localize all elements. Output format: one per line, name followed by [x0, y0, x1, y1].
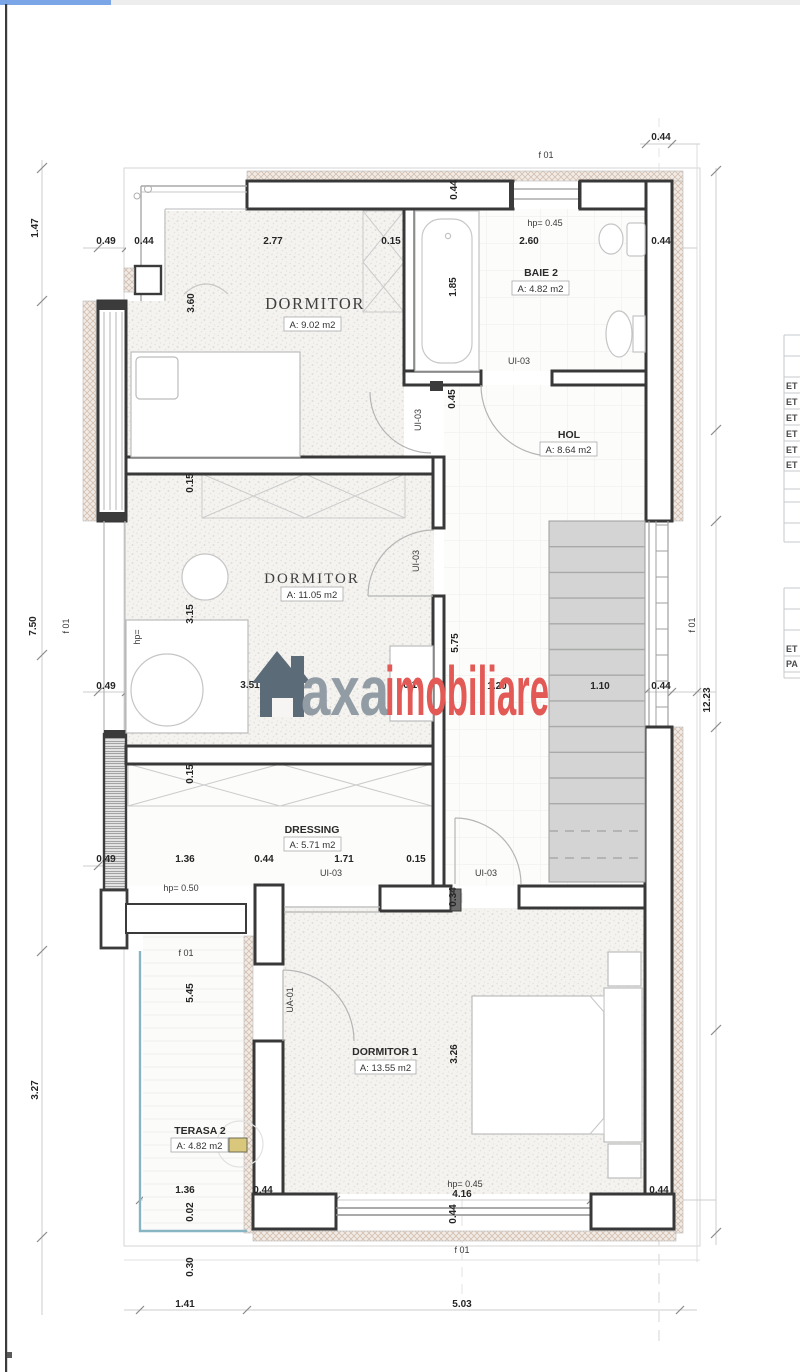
- svg-text:axa: axa: [301, 652, 390, 730]
- svg-text:UI-03: UI-03: [320, 868, 342, 878]
- svg-text:TERASA 2: TERASA 2: [174, 1125, 226, 1137]
- svg-text:1.10: 1.10: [590, 681, 610, 692]
- svg-text:1.47: 1.47: [30, 218, 41, 238]
- svg-text:0.49: 0.49: [96, 236, 116, 247]
- svg-text:A: 11.05 m2: A: 11.05 m2: [287, 590, 338, 601]
- svg-text:hp= 0.45: hp= 0.45: [447, 1179, 482, 1189]
- svg-text:hp= 0.50: hp= 0.50: [163, 883, 198, 893]
- svg-text:3.26: 3.26: [449, 1044, 460, 1064]
- svg-text:0.15: 0.15: [406, 854, 426, 865]
- svg-text:3.15: 3.15: [185, 604, 196, 624]
- svg-text:ET: ET: [786, 397, 798, 407]
- svg-text:BAIE 2: BAIE 2: [524, 267, 558, 279]
- svg-text:f 01: f 01: [178, 948, 193, 958]
- svg-text:0.44: 0.44: [651, 132, 671, 143]
- svg-text:imobiliare: imobiliare: [385, 652, 549, 730]
- svg-text:0.45: 0.45: [447, 389, 458, 409]
- svg-text:0.44: 0.44: [448, 1204, 459, 1224]
- svg-text:5.45: 5.45: [185, 983, 196, 1003]
- svg-text:5.75: 5.75: [450, 633, 461, 653]
- svg-text:ET: ET: [786, 413, 798, 423]
- svg-text:hp=: hp=: [132, 629, 142, 644]
- svg-text:DORMITOR 1: DORMITOR 1: [352, 1046, 418, 1058]
- svg-text:0.02: 0.02: [185, 1202, 196, 1222]
- svg-text:0.44: 0.44: [449, 180, 460, 200]
- svg-text:0.44: 0.44: [649, 1185, 669, 1196]
- svg-text:3.27: 3.27: [30, 1080, 41, 1100]
- svg-text:0.44: 0.44: [253, 1185, 273, 1196]
- svg-text:12.23: 12.23: [702, 687, 713, 712]
- svg-text:UI-03: UI-03: [475, 868, 497, 878]
- svg-text:f 01: f 01: [454, 1245, 469, 1255]
- svg-text:2.77: 2.77: [263, 236, 283, 247]
- svg-text:PA: PA: [786, 659, 798, 669]
- svg-text:2.60: 2.60: [519, 236, 539, 247]
- svg-text:1.36: 1.36: [175, 1185, 195, 1196]
- svg-text:0.15: 0.15: [185, 473, 196, 493]
- svg-text:0.44: 0.44: [254, 854, 274, 865]
- svg-text:3.60: 3.60: [186, 293, 197, 313]
- svg-text:UI-03: UI-03: [411, 550, 421, 572]
- svg-text:HOL: HOL: [558, 429, 581, 441]
- svg-text:f 01: f 01: [687, 617, 697, 632]
- svg-text:0.15: 0.15: [185, 764, 196, 784]
- svg-text:1.71: 1.71: [334, 854, 354, 865]
- svg-text:4.16: 4.16: [452, 1189, 472, 1200]
- svg-text:0.49: 0.49: [96, 854, 116, 865]
- svg-text:DORMITOR: DORMITOR: [264, 571, 360, 587]
- svg-text:A: 4.82 m2: A: 4.82 m2: [518, 284, 564, 295]
- svg-text:A: 9.02 m2: A: 9.02 m2: [290, 320, 336, 331]
- svg-text:7.50: 7.50: [28, 616, 39, 636]
- svg-text:A: 8.64 m2: A: 8.64 m2: [546, 445, 592, 456]
- svg-text:1.41: 1.41: [175, 1299, 195, 1310]
- svg-text:0.44: 0.44: [651, 236, 671, 247]
- svg-text:0.44: 0.44: [134, 236, 154, 247]
- svg-text:ET: ET: [786, 460, 798, 470]
- svg-text:f 01: f 01: [61, 618, 71, 633]
- svg-text:ET: ET: [786, 381, 798, 391]
- svg-text:ET: ET: [786, 445, 798, 455]
- svg-text:0.30: 0.30: [185, 1257, 196, 1277]
- svg-text:DRESSING: DRESSING: [285, 824, 340, 836]
- svg-text:A: 13.55 m2: A: 13.55 m2: [360, 1063, 411, 1074]
- svg-text:0.49: 0.49: [96, 681, 116, 692]
- svg-text:DORMITOR: DORMITOR: [265, 294, 365, 313]
- svg-text:ET: ET: [786, 429, 798, 439]
- svg-text:UI-03: UI-03: [508, 356, 530, 366]
- svg-text:1.85: 1.85: [448, 277, 459, 297]
- svg-text:5.03: 5.03: [452, 1299, 472, 1310]
- svg-text:UI-03: UI-03: [413, 409, 423, 431]
- svg-text:0.44: 0.44: [651, 681, 671, 692]
- svg-text:UA-01: UA-01: [285, 987, 295, 1013]
- svg-text:ET: ET: [786, 644, 798, 654]
- svg-text:A: 5.71 m2: A: 5.71 m2: [290, 840, 336, 851]
- svg-text:0.15: 0.15: [381, 236, 401, 247]
- svg-text:hp= 0.45: hp= 0.45: [527, 218, 562, 228]
- svg-text:1.36: 1.36: [175, 854, 195, 865]
- svg-text:f 01: f 01: [538, 150, 553, 160]
- svg-text:A: 4.82 m2: A: 4.82 m2: [177, 1141, 223, 1152]
- svg-text:0.34: 0.34: [448, 887, 459, 907]
